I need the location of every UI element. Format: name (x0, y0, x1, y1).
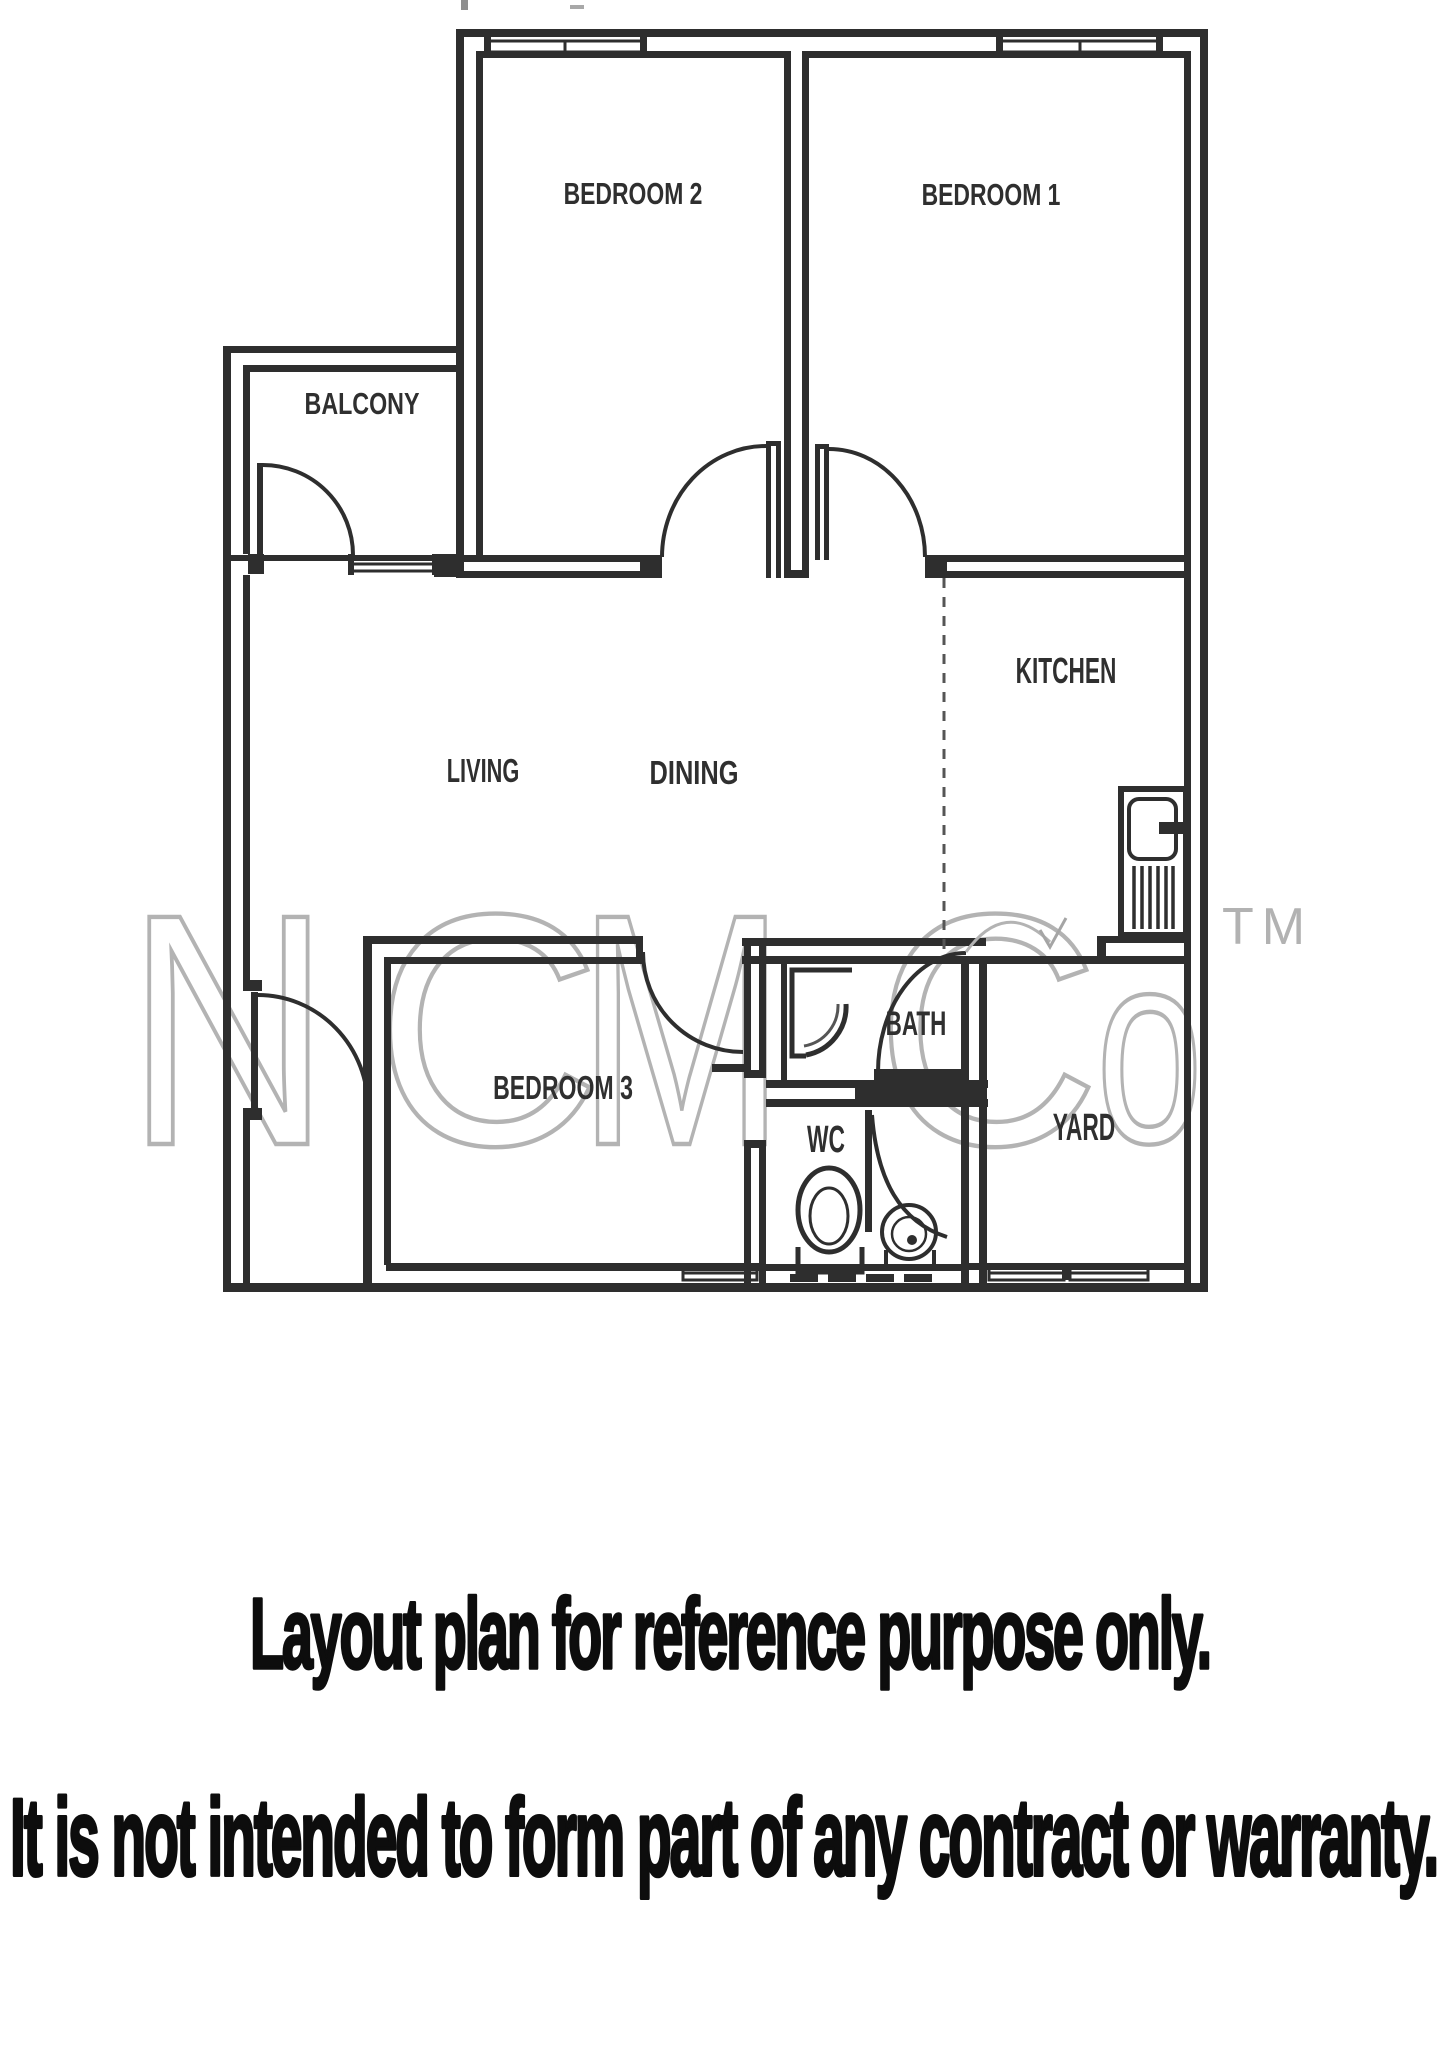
svg-text:BEDROOM 3: BEDROOM 3 (493, 1070, 633, 1107)
svg-text:KITCHEN: KITCHEN (1016, 652, 1117, 691)
svg-text:C: C (374, 846, 601, 1214)
svg-text:LIVING: LIVING (447, 752, 520, 789)
svg-text:BEDROOM 1: BEDROOM 1 (922, 177, 1061, 212)
svg-text:TM: TM (1222, 898, 1313, 956)
svg-text:WC: WC (807, 1118, 845, 1160)
svg-text:Layout plan for reference purp: Layout plan for reference purpose only. (250, 1579, 1210, 1690)
svg-text:YARD: YARD (1053, 1106, 1116, 1148)
svg-text:BEDROOM 2: BEDROOM 2 (564, 176, 703, 211)
svg-text:BALCONY: BALCONY (305, 386, 420, 421)
svg-text:BATH: BATH (886, 1005, 947, 1043)
svg-text:DINING: DINING (650, 755, 739, 792)
svg-text:It is not intended to form par: It is not intended to form part of any c… (10, 1776, 1437, 1899)
